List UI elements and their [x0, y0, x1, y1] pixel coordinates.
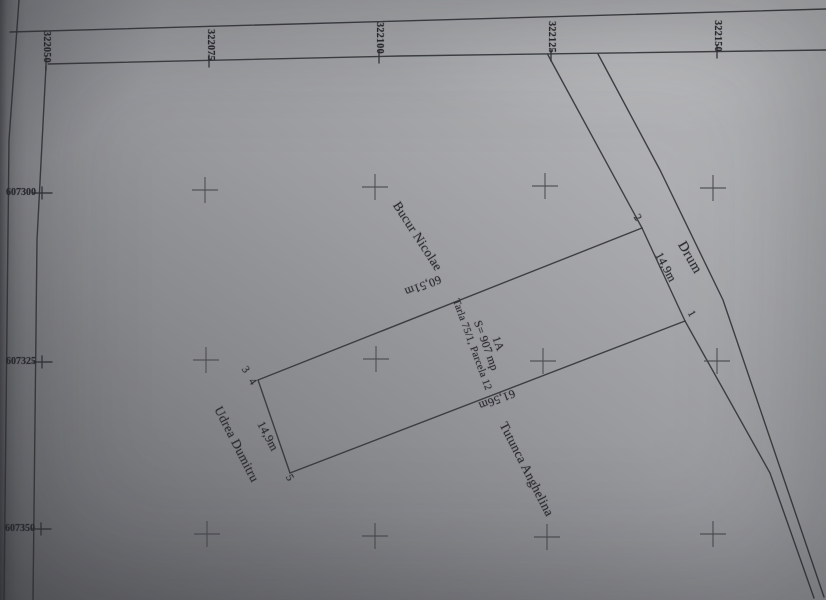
outer-top-border — [10, 9, 826, 32]
grid-label-607350: 607350 — [5, 524, 35, 534]
road-left-edge-upper — [548, 55, 642, 228]
grid-label-322075: 322075 — [205, 29, 215, 61]
inner-left-border — [33, 66, 46, 600]
grid-label-607300: 607300 — [6, 188, 36, 198]
grid-label-322150: 322150 — [712, 20, 722, 52]
grid-label-322100: 322100 — [374, 22, 384, 54]
inner-top-border — [48, 50, 826, 64]
grid-label-322050: 322050 — [41, 31, 51, 63]
grid-label-322125: 322125 — [546, 21, 556, 53]
outer-left-border — [4, 0, 19, 600]
road-right-edge — [598, 54, 824, 597]
plan-lines — [0, 0, 826, 600]
grid-label-607325: 607325 — [6, 357, 36, 367]
cadastral-plan-photo: 3220503220753221003221253221506073006073… — [0, 0, 826, 600]
road-left-edge-lower — [685, 321, 814, 598]
